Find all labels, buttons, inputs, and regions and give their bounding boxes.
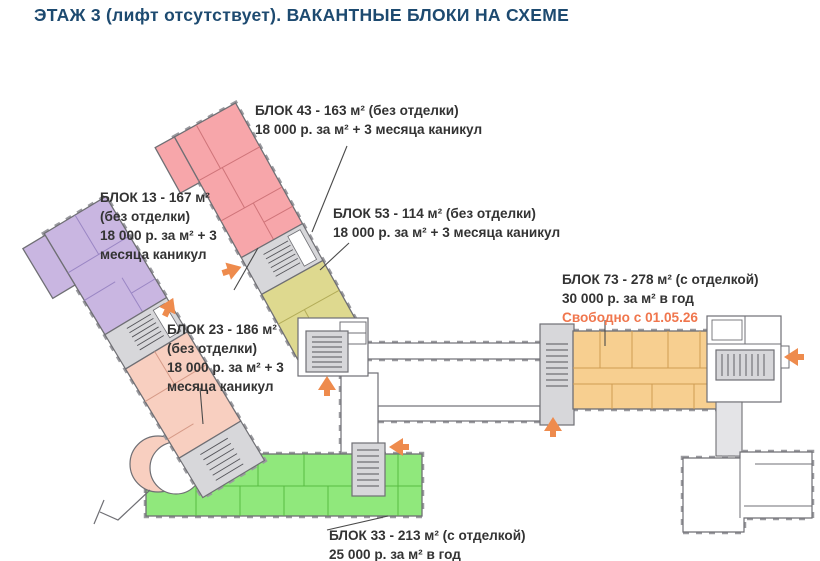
block13-label: БЛОК 13 - 167 м² (без отделки) 18 000 р.… bbox=[100, 188, 217, 264]
block33-terms: 25 000 р. за м² в год bbox=[329, 545, 526, 561]
block23-terms-2: месяца каникул bbox=[167, 377, 284, 396]
stairwell-green-wing bbox=[352, 443, 385, 496]
corridor-network bbox=[341, 343, 542, 457]
block23-name: БЛОК 23 - 186 м² bbox=[167, 320, 284, 339]
central-junction bbox=[298, 318, 368, 376]
page-title: ЭТАЖ 3 (лифт отсутствует). ВАКАНТНЫЕ БЛО… bbox=[34, 5, 569, 26]
block13-terms-1: 18 000 р. за м² + 3 bbox=[100, 226, 217, 245]
block53-name: БЛОК 53 - 114 м² (без отделки) bbox=[333, 204, 560, 223]
block23-finish: (без отделки) bbox=[167, 339, 284, 358]
block43-label: БЛОК 43 - 163 м² (без отделки) 18 000 р.… bbox=[255, 101, 482, 139]
wing-block73 bbox=[540, 316, 789, 456]
slide-floor3-scheme: ЭТАЖ 3 (лифт отсутствует). ВАКАНТНЫЕ БЛО… bbox=[0, 0, 820, 561]
leader-block53 bbox=[320, 243, 349, 270]
stairwell-73-right bbox=[716, 350, 774, 380]
stairwell-tower-73-left bbox=[540, 324, 574, 425]
block43-name: БЛОК 43 - 163 м² (без отделки) bbox=[255, 101, 482, 120]
building-lower-right bbox=[683, 452, 812, 532]
block53-terms: 18 000 р. за м² + 3 месяца каникул bbox=[333, 223, 560, 242]
block33-name: БЛОК 33 - 213 м² (с отделкой) bbox=[329, 526, 526, 545]
block23-label: БЛОК 23 - 186 м² (без отделки) 18 000 р.… bbox=[167, 320, 284, 396]
block53-label: БЛОК 53 - 114 м² (без отделки) 18 000 р.… bbox=[333, 204, 560, 242]
block33-label: БЛОК 33 - 213 м² (с отделкой) 25 000 р. … bbox=[329, 526, 526, 561]
block13-finish: (без отделки) bbox=[100, 207, 217, 226]
block73-terms: 30 000 р. за м² в год bbox=[562, 289, 759, 308]
block73-availability: Свободно с 01.05.26 bbox=[562, 308, 759, 327]
block13-name: БЛОК 13 - 167 м² bbox=[100, 188, 217, 207]
block23-terms-1: 18 000 р. за м² + 3 bbox=[167, 358, 284, 377]
block13-terms-2: месяца каникул bbox=[100, 245, 217, 264]
block73-name: БЛОК 73 - 278 м² (с отделкой) bbox=[562, 270, 759, 289]
block73-area bbox=[573, 331, 725, 409]
stairs-arrow-central bbox=[318, 376, 336, 396]
block43-terms: 18 000 р. за м² + 3 месяца каникул bbox=[255, 120, 482, 139]
block73-label: БЛОК 73 - 278 м² (с отделкой) 30 000 р. … bbox=[562, 270, 759, 327]
